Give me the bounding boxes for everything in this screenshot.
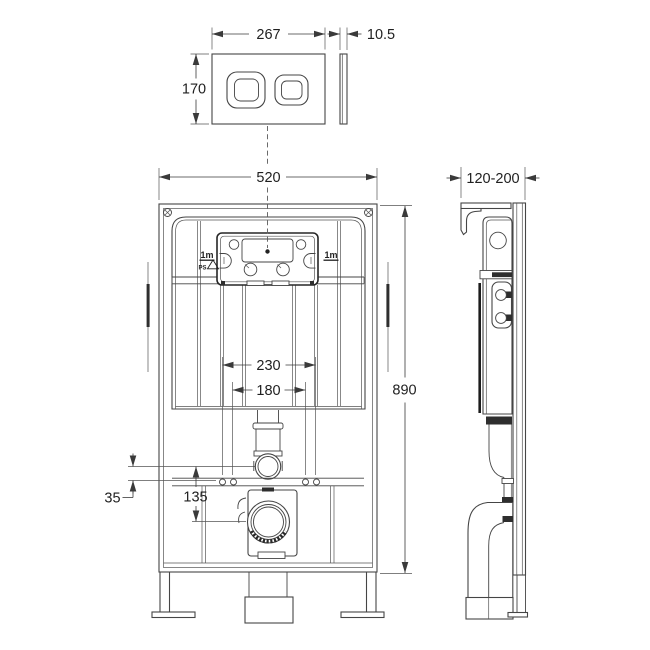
dim-flush-offset: 35 [104,491,120,507]
technical-drawing-page: 267 10.5 170 [0,0,650,650]
frame-side-dimensions: 120-200 [447,167,540,200]
corner-screw-right [365,209,373,217]
waste-outlet-assembly [238,488,297,559]
leg-left [152,572,195,618]
side-rail [513,203,526,575]
dim-fixing-inner: 180 [256,383,280,399]
leg-right [341,572,384,618]
dim-plate-thickness: 10.5 [367,27,395,43]
flush-button-large [227,72,265,108]
dim-plate-height: 170 [182,82,206,98]
flush-plate-side-view [340,54,347,124]
label-hose-right: 1m [324,250,337,260]
technical-drawing-canvas: 267 10.5 170 [0,0,650,650]
flush-button-small-inner [282,81,303,99]
frame-side-view [461,203,528,619]
dim-fixing-outer: 230 [256,358,280,374]
corner-screw-left [164,209,172,217]
flush-pipe [253,410,283,456]
wall-bracket-left-edge [147,262,150,372]
label-hose-left: 1m [200,250,213,260]
frame-front-view: 1m 1m PS [128,204,389,623]
flush-bend-socket [254,454,282,479]
flush-plate-side-outline [340,54,347,124]
wall-bracket-right-edge [386,262,389,372]
dim-outlet-drop: 135 [183,490,207,506]
cistern-side-hole [490,232,507,249]
side-flush-bend [486,417,514,503]
side-waste-elbow [466,503,513,620]
flush-button-small [275,75,308,105]
dim-frame-height: 890 [392,383,416,399]
side-cross-rail [480,271,512,279]
side-bolt-plate [492,282,512,328]
dim-depth-range: 120-200 [466,171,519,187]
dim-plate-width: 267 [256,27,280,43]
label-material: PS [198,266,206,272]
dim-frame-width: 520 [256,170,280,186]
flush-plate-front-view [212,54,325,124]
centerline-dot [265,249,269,253]
flush-button-large-inner [235,79,259,101]
bottom-duct [245,572,293,623]
